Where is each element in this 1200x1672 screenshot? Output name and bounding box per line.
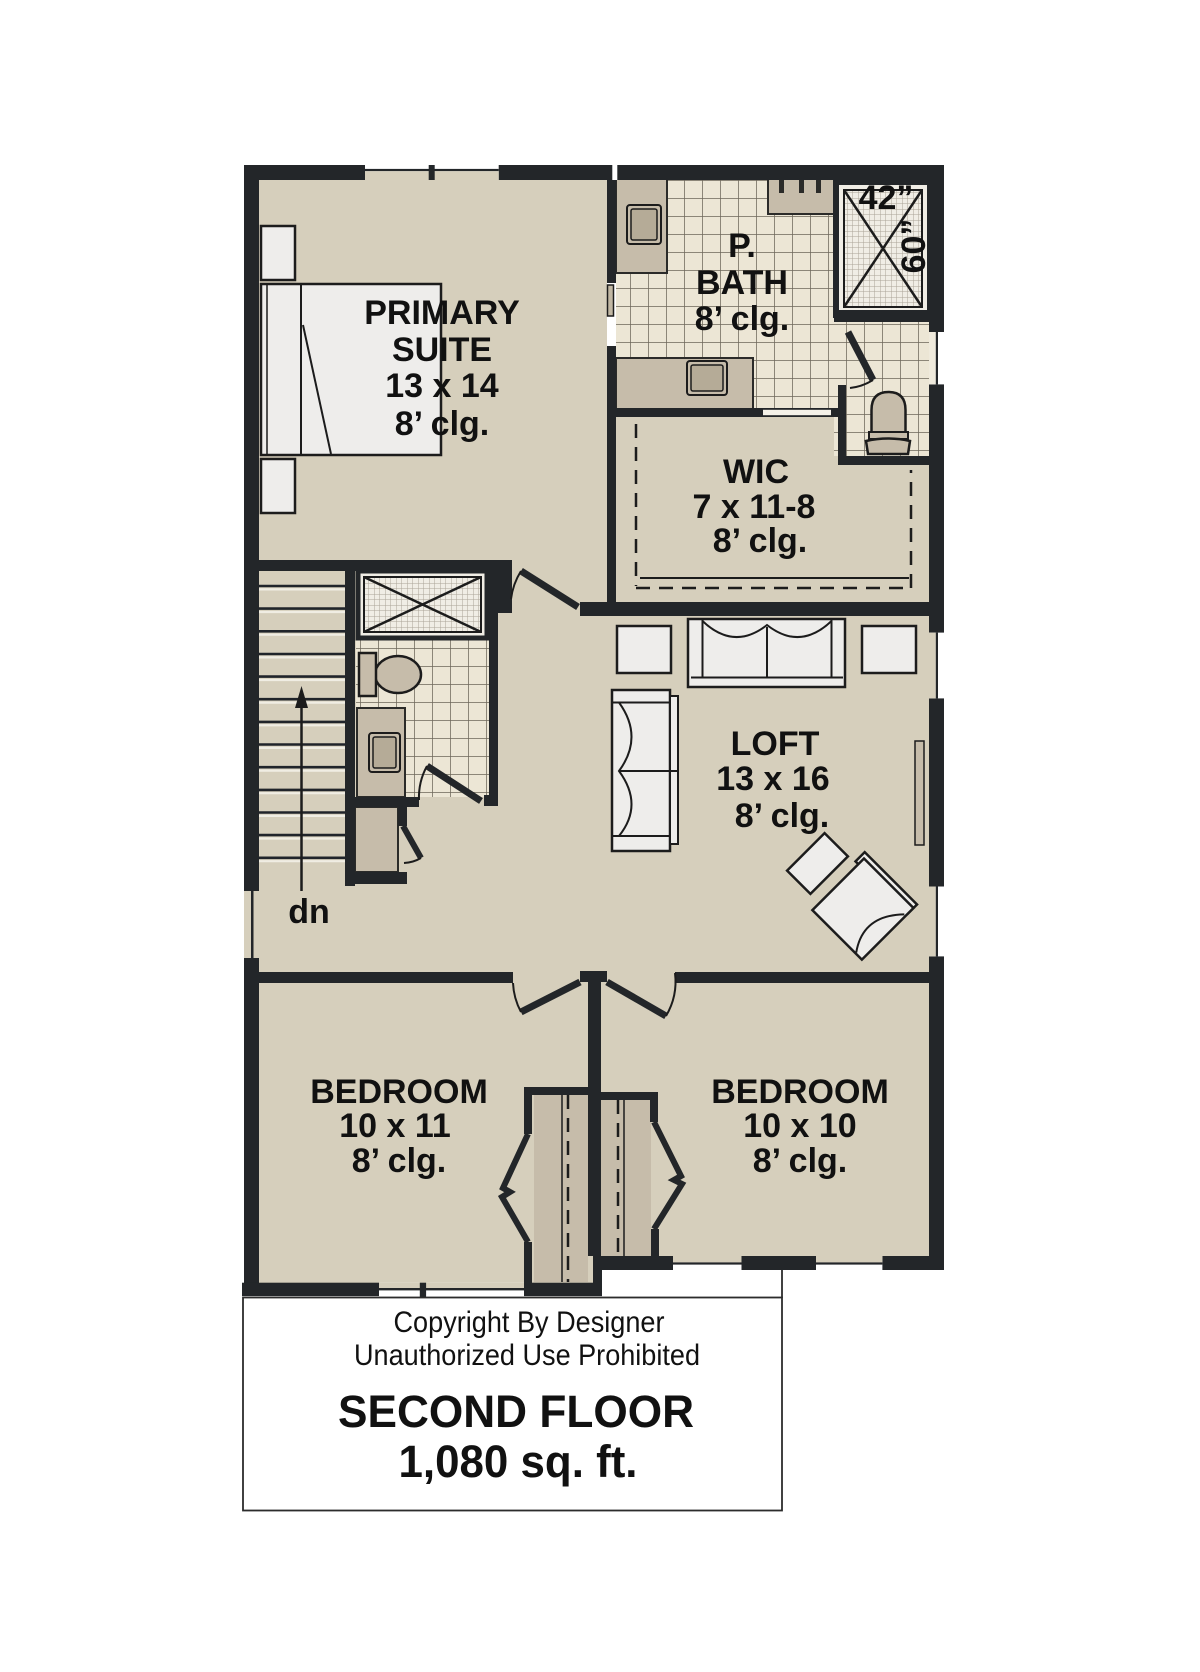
svg-text:13 x 16: 13 x 16 xyxy=(716,760,829,798)
svg-text:1,080 sq. ft.: 1,080 sq. ft. xyxy=(399,1436,638,1487)
svg-text:60”: 60” xyxy=(895,219,933,274)
svg-text:Unauthorized Use Prohibited: Unauthorized Use Prohibited xyxy=(354,1339,700,1372)
svg-text:PRIMARY: PRIMARY xyxy=(364,294,520,332)
svg-text:WIC: WIC xyxy=(723,453,789,491)
svg-text:10 x 11: 10 x 11 xyxy=(339,1107,451,1145)
svg-text:42”: 42” xyxy=(859,179,914,217)
svg-text:BEDROOM: BEDROOM xyxy=(711,1073,889,1111)
svg-text:LOFT: LOFT xyxy=(731,725,820,763)
svg-text:8’ clg.: 8’ clg. xyxy=(735,797,830,835)
svg-text:Copyright By Designer: Copyright By Designer xyxy=(394,1306,665,1339)
svg-text:7 x 11-8: 7 x 11-8 xyxy=(693,488,816,526)
svg-text:8’ clg.: 8’ clg. xyxy=(395,405,490,443)
svg-text:13 x 14: 13 x 14 xyxy=(385,367,499,405)
svg-text:8’ clg.: 8’ clg. xyxy=(695,300,790,338)
svg-text:SECOND FLOOR: SECOND FLOOR xyxy=(338,1386,694,1437)
svg-text:P.: P. xyxy=(728,227,756,265)
svg-text:BEDROOM: BEDROOM xyxy=(310,1073,488,1111)
svg-text:8’ clg.: 8’ clg. xyxy=(352,1142,447,1180)
svg-text:BATH: BATH xyxy=(696,264,788,302)
svg-text:8’ clg.: 8’ clg. xyxy=(753,1142,848,1180)
svg-text:SUITE: SUITE xyxy=(392,331,492,369)
svg-text:10 x 10: 10 x 10 xyxy=(743,1107,856,1145)
svg-text:8’ clg.: 8’ clg. xyxy=(713,522,808,560)
svg-text:dn: dn xyxy=(288,893,330,931)
